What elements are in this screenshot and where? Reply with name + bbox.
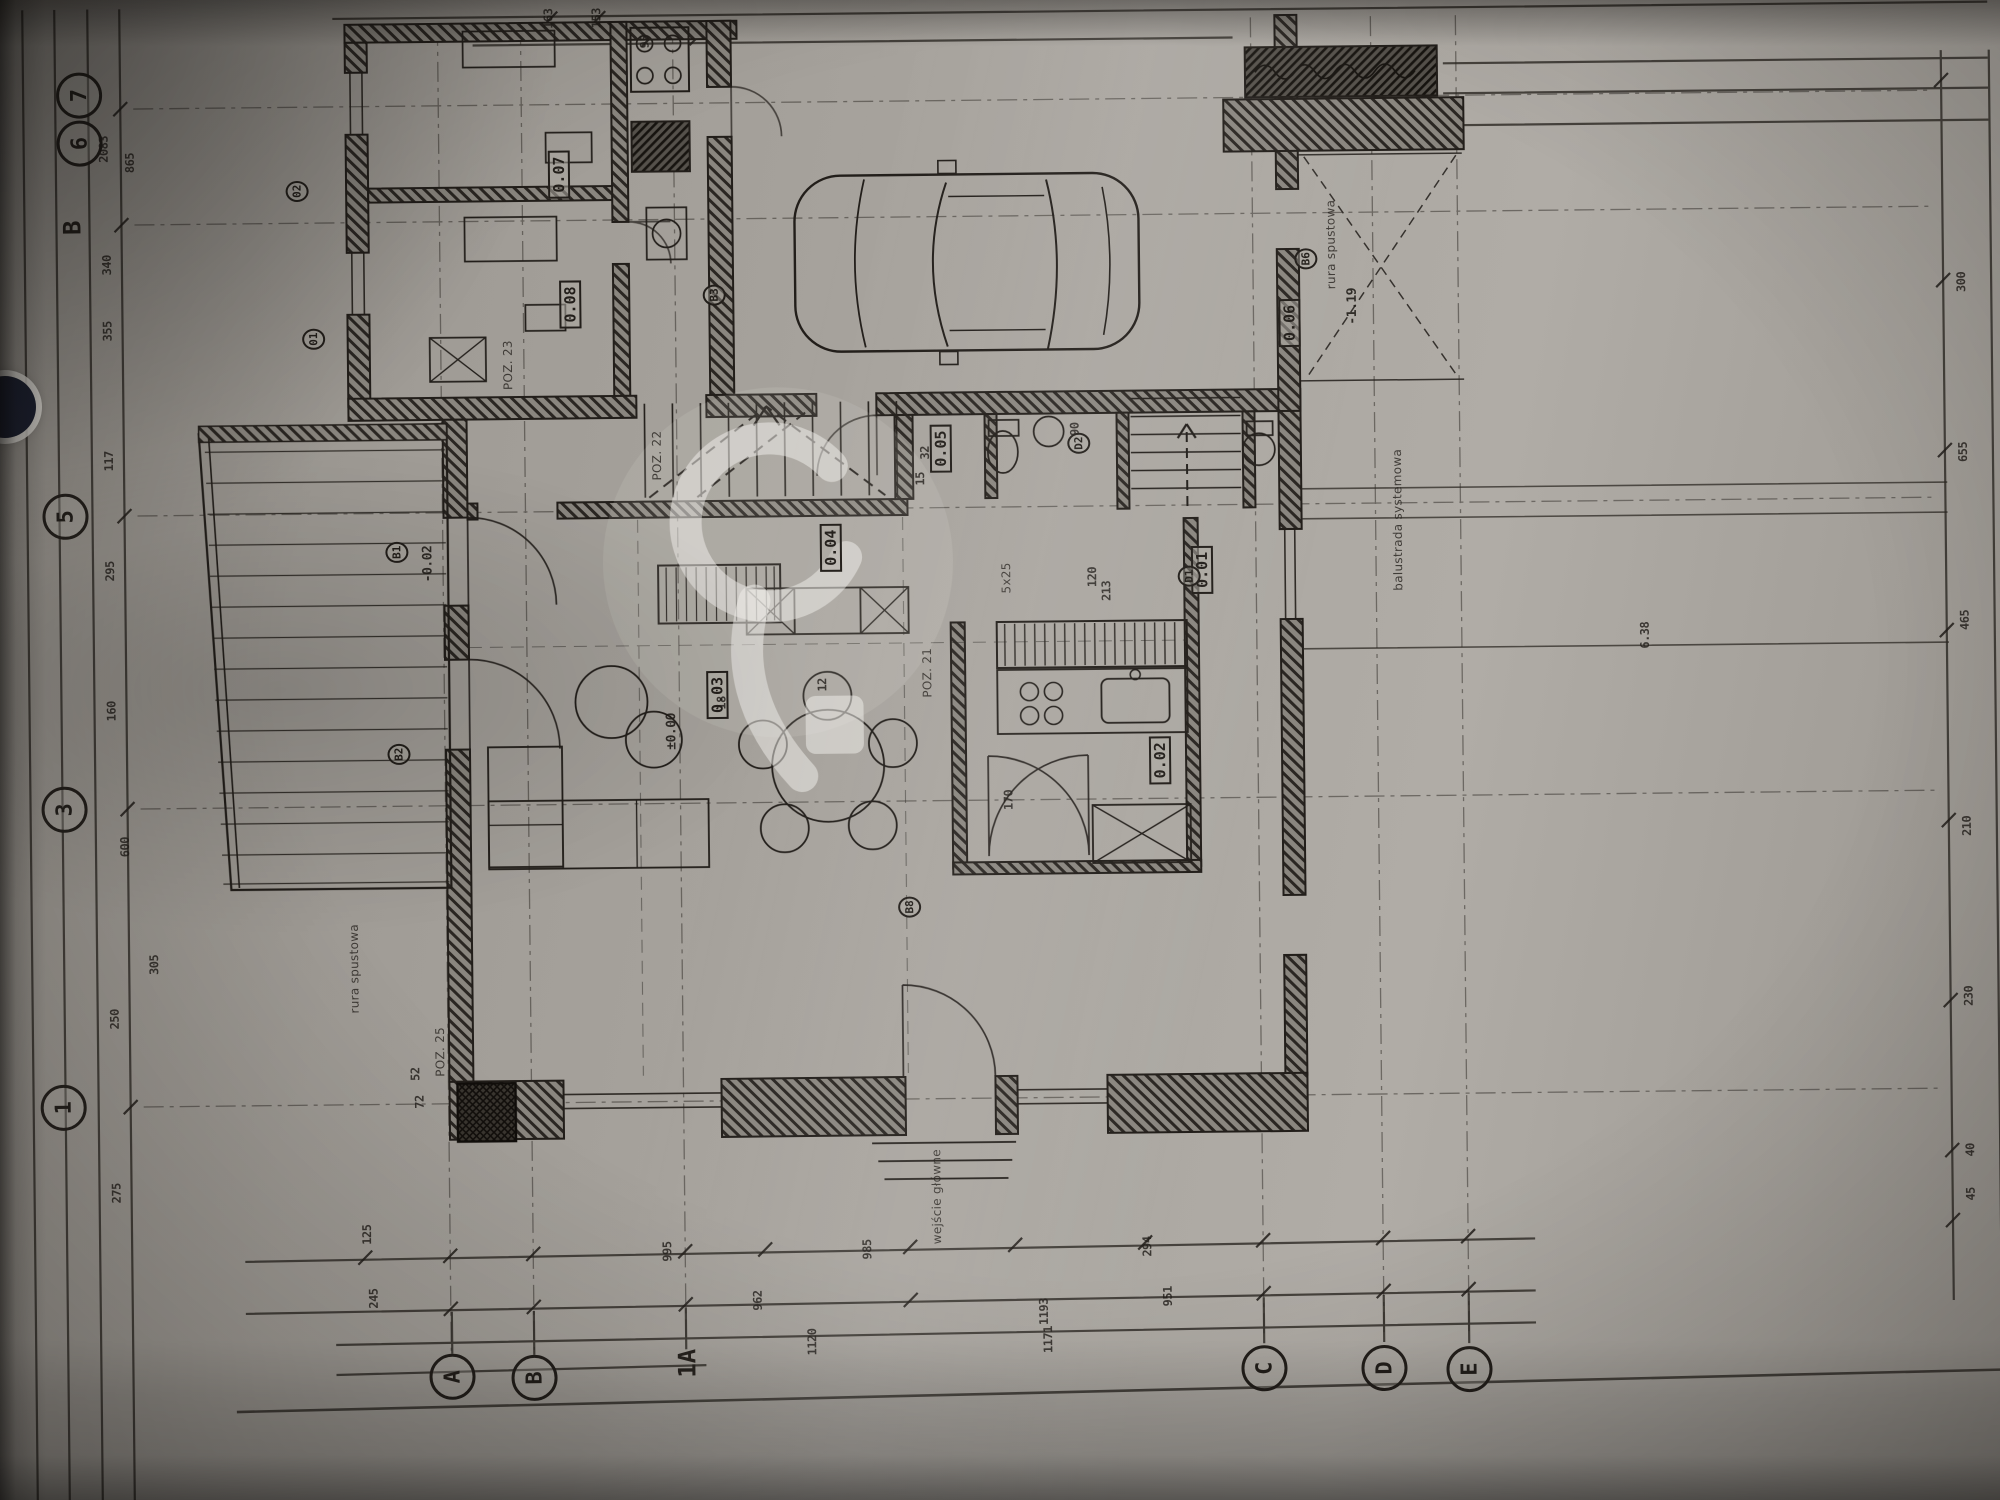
dimension: 295 xyxy=(103,561,117,581)
level-mark: -0.02 xyxy=(420,546,435,583)
axis-bubble: E xyxy=(1446,1346,1492,1392)
dimension: 300 xyxy=(1954,272,1968,292)
dimension: 230 xyxy=(1962,986,1976,1006)
dimension: 2083 xyxy=(97,136,111,163)
axis-section-mark: B xyxy=(58,220,86,235)
axis-bubble: 5 xyxy=(42,494,88,540)
annotation: balustrada systemowa xyxy=(1390,449,1405,591)
dimension: 72 xyxy=(413,1095,427,1109)
axis-bubble: D xyxy=(1361,1345,1407,1391)
dimension: 250 xyxy=(108,1009,122,1029)
axis-bubble: C xyxy=(1241,1345,1287,1391)
dimension: 153 xyxy=(589,8,603,28)
reference-marker: 02 xyxy=(286,181,309,202)
dimension: 210 xyxy=(1960,816,1974,836)
dimension: 655 xyxy=(1956,442,1970,462)
room-number-tag: 0.03 xyxy=(706,671,729,719)
annotation: POZ. 25 xyxy=(433,1027,448,1077)
reference-marker: B6 xyxy=(1294,248,1317,269)
dimension: 6.38 xyxy=(1638,622,1652,649)
dimension: 865 xyxy=(123,153,137,173)
annotation: rura spustowa xyxy=(1323,200,1338,290)
floor-plan-photo: 76531ABCDEB1A0.070.080.060.050.040.030.0… xyxy=(0,0,2000,1500)
room-number-tag: 0.05 xyxy=(930,424,953,472)
dimension: 125 xyxy=(360,1224,374,1244)
dimension: 170 xyxy=(1001,790,1015,810)
dimension: 294 xyxy=(1140,1236,1154,1256)
reference-marker: B3 xyxy=(703,284,726,305)
reference-marker: B1 xyxy=(385,542,408,563)
dimension: 600 xyxy=(118,837,132,857)
dimension: 120 xyxy=(1085,567,1099,587)
dimension: 275 xyxy=(109,1183,123,1203)
annotation: rura spustowa xyxy=(347,924,362,1014)
room-number-tag: 0.08 xyxy=(559,280,582,328)
dimension: 465 xyxy=(1958,610,1972,630)
dimension: 52 xyxy=(408,1067,422,1081)
labels-layer: 76531ABCDEB1A0.070.080.060.050.040.030.0… xyxy=(0,0,2000,1500)
annotation: POZ. 23 xyxy=(501,340,516,390)
dimension: 213 xyxy=(1099,581,1113,601)
dimension: 117 xyxy=(102,451,116,471)
axis-bubble: B xyxy=(511,1355,557,1401)
reference-marker: 01 xyxy=(302,328,325,349)
axis-bubble: 1 xyxy=(40,1085,86,1131)
axis-section-mark: 1A xyxy=(673,1349,701,1378)
axis-bubble: A xyxy=(429,1354,475,1400)
level-mark: ±0.00 xyxy=(664,713,679,750)
plan-rotation-wrapper: 76531ABCDEB1A0.070.080.060.050.040.030.0… xyxy=(0,0,2000,1500)
dimension: 340 xyxy=(100,255,114,275)
dimension: 355 xyxy=(100,321,114,341)
annotation: POZ. 22 xyxy=(650,431,665,481)
dimension: 962 xyxy=(751,1290,765,1310)
dimension: 305 xyxy=(147,955,161,975)
dimension: 12 xyxy=(815,678,829,692)
dimension: 951 xyxy=(1161,1286,1175,1306)
reference-marker: D1 xyxy=(1178,565,1201,586)
dimension: 1120 xyxy=(805,1328,819,1355)
dimension: 1193 xyxy=(1037,1298,1051,1325)
room-number-tag: 0.04 xyxy=(820,524,843,572)
reference-marker: B2 xyxy=(387,744,410,765)
annotation: wejście główne xyxy=(929,1149,944,1244)
dimension: 995 xyxy=(660,1241,674,1261)
dimension: 1171 xyxy=(1041,1326,1055,1353)
dimension: 40 xyxy=(1963,1143,1977,1157)
room-number-tag: 0.06 xyxy=(1278,299,1301,347)
dimension: 245 xyxy=(367,1288,381,1308)
dimension: 160 xyxy=(104,701,118,721)
annotation: 5x25 xyxy=(999,562,1013,593)
dimension: 90 xyxy=(1068,422,1082,436)
dimension: 45 xyxy=(1964,1187,1978,1201)
dimension: 985 xyxy=(860,1239,874,1259)
dimension: 95 xyxy=(637,35,651,49)
annotation: POZ. 21 xyxy=(920,648,935,698)
axis-bubble: 7 xyxy=(56,72,102,118)
level-mark: -1.19 xyxy=(1345,288,1360,325)
reference-marker: B8 xyxy=(898,896,921,917)
dimension: 15 xyxy=(913,472,927,486)
dimension: 163 xyxy=(541,9,555,29)
axis-bubble: 3 xyxy=(41,787,87,833)
dimension: 18 xyxy=(714,696,728,710)
dimension: 32 xyxy=(918,446,932,460)
room-number-tag: 0.02 xyxy=(1149,736,1172,784)
room-number-tag: 0.07 xyxy=(548,150,571,198)
